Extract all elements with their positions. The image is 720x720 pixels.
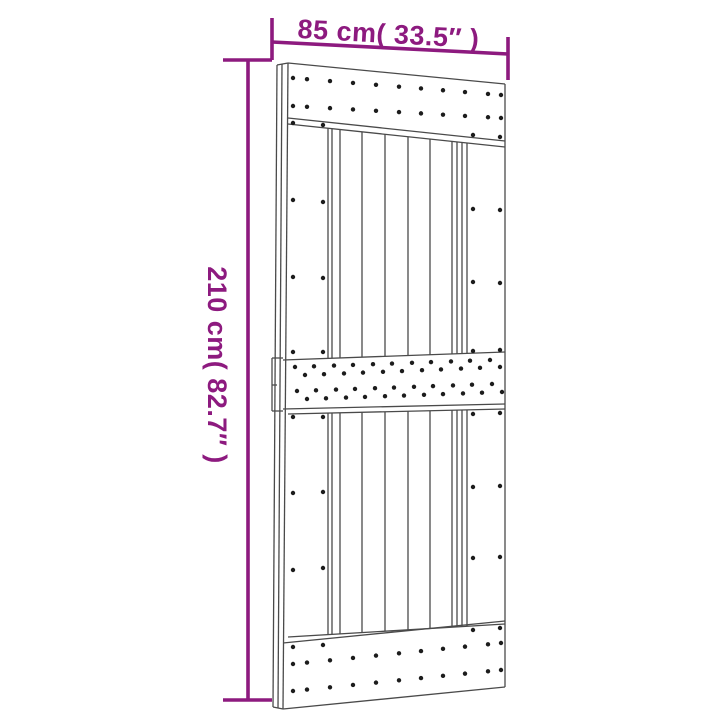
nail-dot <box>305 660 309 664</box>
nail-dot <box>463 90 467 94</box>
nail-dot <box>480 391 484 395</box>
nail-dot <box>471 628 475 632</box>
nail-dot <box>461 391 465 395</box>
nail-dot <box>471 133 475 137</box>
barn-door-dimension-drawing: 85 cm( 33.5″ ) 210 cm( 82.7″ ) <box>0 0 720 720</box>
nail-dot <box>463 114 467 118</box>
nail-dot <box>334 387 338 391</box>
nail-dot <box>478 366 482 370</box>
nail-dot <box>291 568 295 572</box>
nail-dot <box>500 390 504 394</box>
door-board-edge <box>288 63 505 84</box>
nail-dot <box>471 485 475 489</box>
nail-dot <box>321 643 325 647</box>
door-board-edge <box>283 63 288 709</box>
nail-dot <box>291 645 295 649</box>
nail-dot <box>305 77 309 81</box>
nail-dot <box>410 361 414 365</box>
nail-dot <box>291 689 295 693</box>
nail-dot <box>486 669 490 673</box>
nail-dot <box>383 394 387 398</box>
nail-dot <box>449 359 453 363</box>
nail-dot <box>291 491 295 495</box>
nail-dot <box>498 135 502 139</box>
nail-dot <box>351 81 355 85</box>
nail-dot <box>373 386 377 390</box>
nail-dot <box>328 106 332 110</box>
door-board-edge <box>283 621 505 643</box>
nail-dot <box>344 395 348 399</box>
nail-dot <box>303 373 307 377</box>
nail-dot <box>295 389 299 393</box>
nail-dot <box>420 368 424 372</box>
nail-dot <box>397 651 401 655</box>
nail-dot <box>321 276 325 280</box>
nail-dot <box>381 370 385 374</box>
door-board-edge <box>283 352 505 360</box>
nail-dot <box>400 369 404 373</box>
nail-dot <box>441 674 445 678</box>
nail-dot <box>499 93 503 97</box>
nail-dots-layer <box>291 76 504 693</box>
nail-dot <box>363 395 367 399</box>
nail-dot <box>468 359 472 363</box>
nail-dot <box>486 92 490 96</box>
dimension-lines-layer <box>223 18 508 700</box>
nail-dot <box>351 683 355 687</box>
nail-dot <box>498 411 502 415</box>
nail-dot <box>397 110 401 114</box>
nail-dot <box>324 396 328 400</box>
nail-dot <box>498 208 502 212</box>
nail-dot <box>486 115 490 119</box>
height-dimension-label: 210 cm( 82.7″ ) <box>202 266 232 464</box>
nail-dot <box>498 365 502 369</box>
nail-dot <box>441 392 445 396</box>
nail-dot <box>402 393 406 397</box>
nail-dot <box>351 656 355 660</box>
nail-dot <box>431 384 435 388</box>
nail-dot <box>441 647 445 651</box>
nail-dot <box>291 198 295 202</box>
nail-dot <box>321 566 325 570</box>
nail-dot <box>328 79 332 83</box>
nail-dot <box>374 83 378 87</box>
nail-dot <box>429 360 433 364</box>
nail-dot <box>390 361 394 365</box>
nail-dot <box>321 200 325 204</box>
nail-dot <box>392 385 396 389</box>
nail-dot <box>459 366 463 370</box>
nail-dot <box>321 415 325 419</box>
nail-dot <box>470 383 474 387</box>
nail-dot <box>419 649 423 653</box>
nail-dot <box>498 626 502 630</box>
nail-dot <box>463 644 467 648</box>
nail-dot <box>471 412 475 416</box>
nail-dot <box>322 372 326 376</box>
nail-dot <box>419 86 423 90</box>
nail-dot <box>353 387 357 391</box>
nail-dot <box>498 281 502 285</box>
nail-dot <box>374 680 378 684</box>
nail-dot <box>422 393 426 397</box>
nail-dot <box>351 363 355 367</box>
nail-dot <box>441 112 445 116</box>
nail-dot <box>498 555 502 559</box>
nail-dot <box>374 653 378 657</box>
nail-dot <box>439 367 443 371</box>
nail-dot <box>397 84 401 88</box>
nail-dot <box>471 207 475 211</box>
nail-dot <box>342 371 346 375</box>
nail-dot <box>471 280 475 284</box>
nail-dot <box>321 350 325 354</box>
nail-dot <box>419 111 423 115</box>
nail-dot <box>321 123 325 127</box>
nail-dot <box>471 556 475 560</box>
nail-dot <box>499 116 503 120</box>
nail-dot <box>498 348 502 352</box>
nail-dot <box>361 370 365 374</box>
nail-dot <box>486 642 490 646</box>
nail-dot <box>321 490 325 494</box>
nail-dot <box>371 362 375 366</box>
nail-dot <box>499 641 503 645</box>
nail-dot <box>291 76 295 80</box>
nail-dot <box>351 107 355 111</box>
door-outline-layer <box>272 63 505 709</box>
nail-dot <box>293 365 297 369</box>
nail-dot <box>463 671 467 675</box>
door-board-edge <box>283 404 505 409</box>
nail-dot <box>397 678 401 682</box>
nail-dot <box>441 88 445 92</box>
nail-dot <box>291 104 295 108</box>
nail-dot <box>291 275 295 279</box>
nail-dot <box>305 105 309 109</box>
door-board-edge <box>278 64 282 708</box>
nail-dot <box>498 484 502 488</box>
nail-dot <box>291 415 295 419</box>
nail-dot <box>412 385 416 389</box>
door-board-edge <box>288 118 505 141</box>
nail-dot <box>451 383 455 387</box>
nail-dot <box>291 350 295 354</box>
width-dimension-label: 85 cm( 33.5″ ) <box>297 14 480 54</box>
nail-dot <box>328 658 332 662</box>
nail-dot <box>499 668 503 672</box>
nail-dot <box>305 397 309 401</box>
nail-dot <box>328 685 332 689</box>
product-diagram-canvas: 85 cm( 33.5″ ) 210 cm( 82.7″ ) <box>0 0 720 720</box>
nail-dot <box>374 109 378 113</box>
nail-dot <box>291 662 295 666</box>
nail-dot <box>291 121 295 125</box>
nail-dot <box>314 388 318 392</box>
nail-dot <box>332 363 336 367</box>
nail-dot <box>488 358 492 362</box>
nail-dot <box>312 364 316 368</box>
nail-dot <box>419 676 423 680</box>
door-board-edge <box>283 687 505 709</box>
nail-dot <box>305 687 309 691</box>
nail-dot <box>471 349 475 353</box>
door-board-edge <box>273 65 277 707</box>
nail-dot <box>490 382 494 386</box>
